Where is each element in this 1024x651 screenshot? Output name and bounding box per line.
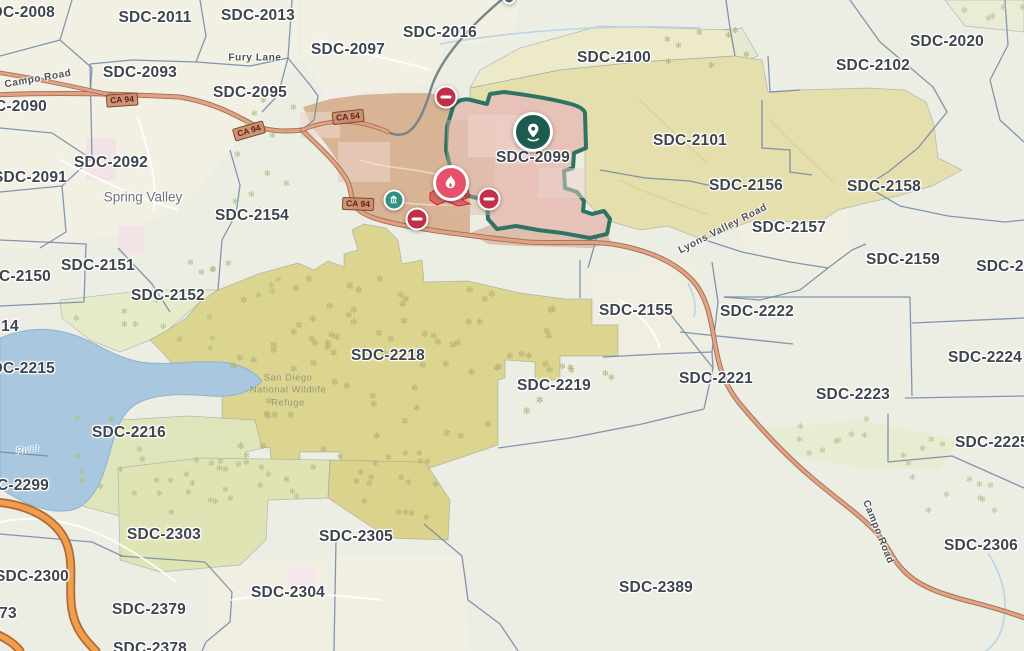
tree-icon: ✻ xyxy=(185,488,192,497)
tree-icon: ✻ xyxy=(198,268,205,277)
tree-icon: ✻ xyxy=(345,310,353,320)
tree-icon: ✻ xyxy=(443,428,451,438)
tree-icon: ✻ xyxy=(939,440,946,449)
tree-icon: ✻ xyxy=(189,479,196,488)
tree-icon: ✻ xyxy=(416,449,423,458)
tree-icon: ✻ xyxy=(222,465,229,474)
tree-icon: ✻ xyxy=(395,508,402,517)
tree-icon: ✻ xyxy=(240,295,248,305)
tree-icon: ✻ xyxy=(488,289,496,299)
tree-icon: ✻ xyxy=(153,476,160,485)
tree-icon: ✻ xyxy=(292,283,300,293)
tree-icon: ✻ xyxy=(1000,3,1007,12)
tree-icon: ✻ xyxy=(283,475,290,484)
tree-icon: ✻ xyxy=(209,334,216,343)
zone-label[interactable]: SDC-2304 xyxy=(251,584,325,602)
tree-icon: ✻ xyxy=(263,409,271,419)
tree-icon: ✻ xyxy=(559,362,566,371)
tree-icon: ✻ xyxy=(397,290,405,300)
tree-icon: ✻ xyxy=(311,338,319,348)
tree-icon: ✻ xyxy=(398,473,405,482)
tree-icon: ✻ xyxy=(310,358,318,368)
tree-icon: ✻ xyxy=(543,326,551,336)
tree-icon: ✻ xyxy=(372,459,379,468)
road-closure-marker[interactable] xyxy=(478,188,501,211)
tree-icon: ✻ xyxy=(121,320,128,329)
zone-label[interactable]: SDC-2101 xyxy=(653,132,727,150)
tree-icon: ✻ xyxy=(797,422,804,431)
tree-icon: ✻ xyxy=(385,453,392,462)
tree-icon: ✻ xyxy=(265,470,272,479)
zone-label[interactable]: SDC-2158 xyxy=(847,178,921,196)
tree-icon: ✻ xyxy=(405,478,412,487)
tree-icon: ✻ xyxy=(536,395,544,405)
tree-icon: ✻ xyxy=(442,359,450,369)
tree-icon: ✻ xyxy=(168,508,175,517)
no-entry-icon xyxy=(411,217,423,221)
zone-label[interactable]: SDC-2150 xyxy=(0,268,51,286)
tree-icon: ✻ xyxy=(408,509,415,518)
tree-icon: ✻ xyxy=(373,431,381,441)
zone-label[interactable]: SDC-2156 xyxy=(709,177,783,195)
zone-label[interactable]: SDC-2378 xyxy=(113,640,187,651)
tree-icon: ✻ xyxy=(547,305,555,315)
zone-label[interactable]: SDC-2154 xyxy=(215,207,289,225)
tree-icon: ✻ xyxy=(237,441,245,451)
tree-icon: ✻ xyxy=(333,332,341,342)
tree-icon: ✻ xyxy=(309,314,317,324)
zone-label[interactable]: SDC-2 xyxy=(976,258,1024,276)
tree-icon: ✻ xyxy=(259,441,267,451)
zone-label[interactable]: 14 xyxy=(1,318,19,336)
tree-icon: ✻ xyxy=(331,377,339,387)
tree-icon: ✻ xyxy=(217,457,224,466)
zone-label[interactable]: SDC-2389 xyxy=(619,579,693,597)
tree-icon: ✻ xyxy=(251,109,258,118)
tree-icon: ✻ xyxy=(484,419,492,429)
tree-icon: ✻ xyxy=(905,459,912,468)
zone-label[interactable]: SDC-2379 xyxy=(112,601,186,619)
tree-icon: ✻ xyxy=(326,301,334,311)
tree-icon: ✻ xyxy=(324,338,332,348)
zone-label[interactable]: SDC-2221 xyxy=(679,370,753,388)
zone-label[interactable]: SDC-2152 xyxy=(131,287,205,305)
tree-icon: ✻ xyxy=(976,480,983,489)
tree-icon: ✻ xyxy=(806,449,813,458)
tree-icon: ✻ xyxy=(819,446,826,455)
tree-icon: ✻ xyxy=(743,50,750,59)
tree-icon: ✻ xyxy=(271,410,279,420)
tree-icon: ✻ xyxy=(269,131,276,140)
zone-label[interactable]: SDC-2303 xyxy=(127,526,201,544)
tree-icon: ✻ xyxy=(74,452,81,461)
tree-icon: ✻ xyxy=(275,275,282,284)
tree-icon: ✻ xyxy=(117,465,124,474)
highway-shield: CA 94 xyxy=(342,197,374,211)
zone-label[interactable]: SDC-2215 xyxy=(0,360,55,378)
zone-label[interactable]: SDC-2151 xyxy=(61,257,135,275)
tree-icon: ✻ xyxy=(73,314,80,323)
zone-label[interactable]: SDC-2305 xyxy=(319,528,393,546)
tree-icon: ✻ xyxy=(368,473,375,482)
tree-icon: ✻ xyxy=(506,351,514,361)
tree-icon: ✻ xyxy=(376,274,384,284)
highway-shield: CA 94 xyxy=(106,92,139,107)
tree-icon: ✻ xyxy=(310,463,317,472)
tree-icon: ✻ xyxy=(355,285,363,295)
map-canvas[interactable]: ✻✻✻✻✻✻✻✻✻✻✻✻✻✻✻✻✻✻✻✻✻✻✻✻✻✻✻✻✻✻✻✻✻✻✻✻✻✻✻✻… xyxy=(0,0,1024,651)
tree-icon: ✻ xyxy=(465,317,473,327)
tree-icon: ✻ xyxy=(961,6,968,15)
road-closure-marker[interactable] xyxy=(435,86,458,109)
zone-label[interactable]: SDC-2093 xyxy=(103,64,177,82)
tree-icon: ✻ xyxy=(608,373,615,382)
zone-label[interactable]: SDC-2225 xyxy=(955,434,1024,452)
zone-label[interactable]: SDC-2159 xyxy=(866,251,940,269)
tree-icon: ✻ xyxy=(925,506,932,515)
tree-icon: ✻ xyxy=(132,320,139,329)
tree-icon: ✻ xyxy=(796,435,803,444)
zone-label[interactable]: SDC-2020 xyxy=(910,33,984,51)
tree-icon: ✻ xyxy=(139,455,146,464)
zone-label[interactable]: SDC-2102 xyxy=(836,57,910,75)
zone-label[interactable]: 73 xyxy=(0,605,17,623)
tree-icon: ✻ xyxy=(183,470,190,479)
zone-label[interactable]: SDC-2222 xyxy=(720,303,794,321)
no-entry-icon xyxy=(440,95,452,99)
tree-icon: ✻ xyxy=(97,482,104,491)
tree-icon: ✻ xyxy=(283,179,290,188)
tree-icon: ✻ xyxy=(665,57,672,66)
tree-icon: ✻ xyxy=(227,494,234,503)
tree-icon: ✻ xyxy=(209,265,216,274)
no-entry-icon xyxy=(483,197,495,201)
tree-icon: ✻ xyxy=(136,445,143,454)
tree-icon: ✻ xyxy=(264,169,271,178)
tree-icon: ✻ xyxy=(402,508,409,517)
zone-label[interactable]: SDC-2155 xyxy=(599,302,673,320)
zone-label[interactable]: SDC-2218 xyxy=(351,347,425,365)
zone-label[interactable]: SDC-2008 xyxy=(0,4,55,22)
tree-icon: ✻ xyxy=(206,313,213,322)
zone-label[interactable]: SDC-2299 xyxy=(0,477,49,495)
tree-icon: ✻ xyxy=(493,363,501,373)
tree-icon: ✻ xyxy=(454,338,462,348)
tree-icon: ✻ xyxy=(212,497,219,506)
tree-icon: ✻ xyxy=(835,436,842,445)
tree-icon: ✻ xyxy=(523,406,531,416)
tree-icon: ✻ xyxy=(413,403,421,413)
road-closure-marker[interactable] xyxy=(406,208,429,231)
tree-icon: ✻ xyxy=(255,291,262,300)
tree-icon: ✻ xyxy=(664,35,671,44)
tree-icon: ✻ xyxy=(337,452,344,461)
zone-label[interactable]: SDC-2216 xyxy=(92,424,166,442)
tree-icon: ✻ xyxy=(176,335,183,344)
fire-marker[interactable] xyxy=(433,165,469,201)
tree-icon: ✻ xyxy=(193,456,200,465)
tree-icon: ✻ xyxy=(287,410,295,420)
zone-label[interactable]: SDC-2092 xyxy=(74,154,148,172)
zone-label[interactable]: SDC-2016 xyxy=(403,24,477,42)
tree-icon: ✻ xyxy=(258,463,265,472)
tree-icon: ✻ xyxy=(232,197,239,206)
tree-icon: ✻ xyxy=(343,381,351,391)
zone-label[interactable]: SDC-2157 xyxy=(752,219,826,237)
zone-label[interactable]: SDC-2091 xyxy=(0,169,67,187)
tree-icon: ✻ xyxy=(476,317,484,327)
tree-icon: ✻ xyxy=(121,307,128,316)
tree-icon: ✻ xyxy=(295,320,303,330)
tree-icon: ✻ xyxy=(989,12,996,21)
tree-icon: ✻ xyxy=(290,103,297,112)
tree-icon: ✻ xyxy=(421,329,429,339)
incident-location-marker[interactable] xyxy=(513,112,553,152)
tree-icon: ✻ xyxy=(248,190,255,199)
area-label: San Diego National Wildlife Refuge xyxy=(250,372,327,409)
tree-icon: ✻ xyxy=(222,485,229,494)
tree-icon: ✻ xyxy=(357,468,364,477)
zone-label[interactable]: SDC-2095 xyxy=(213,84,287,102)
tree-icon: ✻ xyxy=(848,430,855,439)
tree-icon: ✻ xyxy=(320,445,327,454)
tree-icon: ✻ xyxy=(387,334,395,344)
tree-icon: ✻ xyxy=(423,513,430,522)
tree-icon: ✻ xyxy=(468,367,476,377)
tree-icon: ✻ xyxy=(156,489,163,498)
tree-icon: ✻ xyxy=(346,281,354,291)
zone-label[interactable]: SDC-2090 xyxy=(0,98,47,116)
tree-icon: ✻ xyxy=(187,258,194,267)
tree-icon: ✻ xyxy=(977,494,984,503)
tree-icon: ✻ xyxy=(481,294,489,304)
tree-icon: ✻ xyxy=(466,285,474,295)
tree-icon: ✻ xyxy=(725,31,732,40)
tree-icon: ✻ xyxy=(207,344,214,353)
tree-icon: ✻ xyxy=(919,444,926,453)
zone-label[interactable]: SDC-2011 xyxy=(118,9,191,27)
tree-icon: ✻ xyxy=(1019,3,1024,12)
tree-icon: ✻ xyxy=(250,355,258,365)
zone-label[interactable]: SDC-2097 xyxy=(311,41,385,59)
zone-label[interactable]: SDC-2224 xyxy=(948,349,1022,367)
tree-icon: ✻ xyxy=(289,487,296,496)
tree-icon: ✻ xyxy=(863,415,870,424)
tree-icon: ✻ xyxy=(235,460,242,469)
zone-label[interactable]: SDC-2300 xyxy=(0,568,69,586)
tree-icon: ✻ xyxy=(424,457,431,466)
zone-label[interactable]: SDC-2306 xyxy=(944,537,1018,555)
tree-icon: ✻ xyxy=(375,328,383,338)
tree-icon: ✻ xyxy=(74,414,81,423)
tree-icon: ✻ xyxy=(525,351,533,361)
tree-icon: ✻ xyxy=(305,274,313,284)
zone-label[interactable]: SDC-2100 xyxy=(577,49,651,67)
tree-icon: ✻ xyxy=(966,475,973,484)
tree-icon: ✻ xyxy=(675,41,682,50)
tree-icon: ✻ xyxy=(457,431,465,441)
tree-icon: ✻ xyxy=(257,481,264,490)
tree-icon: ✻ xyxy=(402,449,409,458)
tree-icon: ✻ xyxy=(236,353,244,363)
zone-label[interactable]: SDC-2219 xyxy=(517,377,591,395)
zone-label[interactable]: SDC-2013 xyxy=(221,7,295,25)
tree-icon: ✻ xyxy=(991,506,998,515)
tree-icon: ✻ xyxy=(160,322,167,331)
zone-label[interactable]: SDC-2223 xyxy=(816,386,890,404)
tree-icon: ✻ xyxy=(270,340,278,350)
tree-icon: ✻ xyxy=(400,316,408,326)
tree-icon: ✻ xyxy=(108,415,115,424)
tree-icon: ✻ xyxy=(708,61,715,70)
tree-icon: ✻ xyxy=(79,476,86,485)
tree-icon: ✻ xyxy=(268,281,275,290)
tree-icon: ✻ xyxy=(861,431,868,440)
place-label: Spring Valley xyxy=(104,190,183,205)
road-label: Fury Lane xyxy=(228,53,281,64)
tree-icon: ✻ xyxy=(943,490,950,499)
tree-icon: ✻ xyxy=(434,337,442,347)
tree-icon: ✻ xyxy=(546,365,554,375)
tree-icon: ✻ xyxy=(399,299,407,309)
tree-icon: ✻ xyxy=(411,383,419,393)
tree-icon: ✻ xyxy=(696,28,703,37)
tree-icon: ✻ xyxy=(928,435,935,444)
tree-icon: ✻ xyxy=(131,489,138,498)
tree-icon: ✻ xyxy=(243,451,250,460)
map-viewport[interactable]: ✻✻✻✻✻✻✻✻✻✻✻✻✻✻✻✻✻✻✻✻✻✻✻✻✻✻✻✻✻✻✻✻✻✻✻✻✻✻✻✻… xyxy=(0,0,1024,651)
tree-icon: ✻ xyxy=(568,366,575,375)
tree-icon: ✻ xyxy=(225,259,232,268)
tree-icon: ✻ xyxy=(167,476,174,485)
tree-icon: ✻ xyxy=(234,150,241,159)
tree-icon: ✻ xyxy=(909,473,916,482)
tree-icon: ✻ xyxy=(353,477,360,486)
tree-icon: ✻ xyxy=(208,459,215,468)
tree-icon: ✻ xyxy=(987,481,994,490)
tree-icon: ✻ xyxy=(361,497,368,506)
tree-icon: ✻ xyxy=(370,399,378,409)
tree-icon: ✻ xyxy=(732,26,739,35)
tree-icon: ✻ xyxy=(401,416,409,426)
tree-icon: ✻ xyxy=(432,480,439,489)
tree-icon: ✻ xyxy=(417,457,424,466)
facility-marker[interactable] xyxy=(384,190,405,211)
